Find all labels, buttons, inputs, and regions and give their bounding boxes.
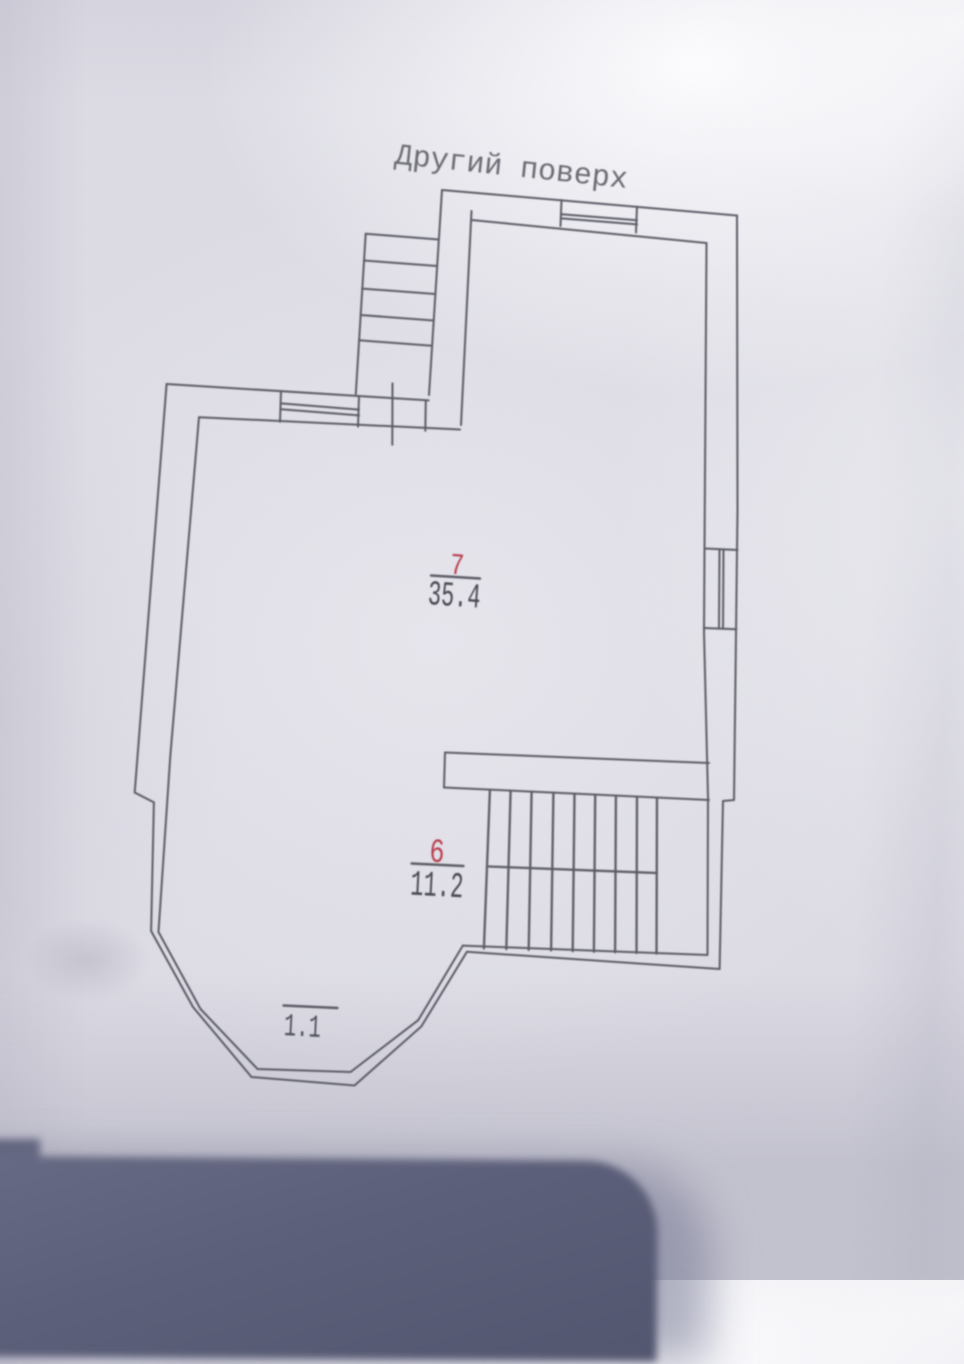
svg-text:35.4: 35.4: [427, 575, 482, 619]
svg-text:11.2: 11.2: [409, 865, 464, 909]
svg-text:1.1: 1.1: [283, 1008, 322, 1047]
svg-text:Другий поверх: Другий поверх: [393, 140, 629, 198]
